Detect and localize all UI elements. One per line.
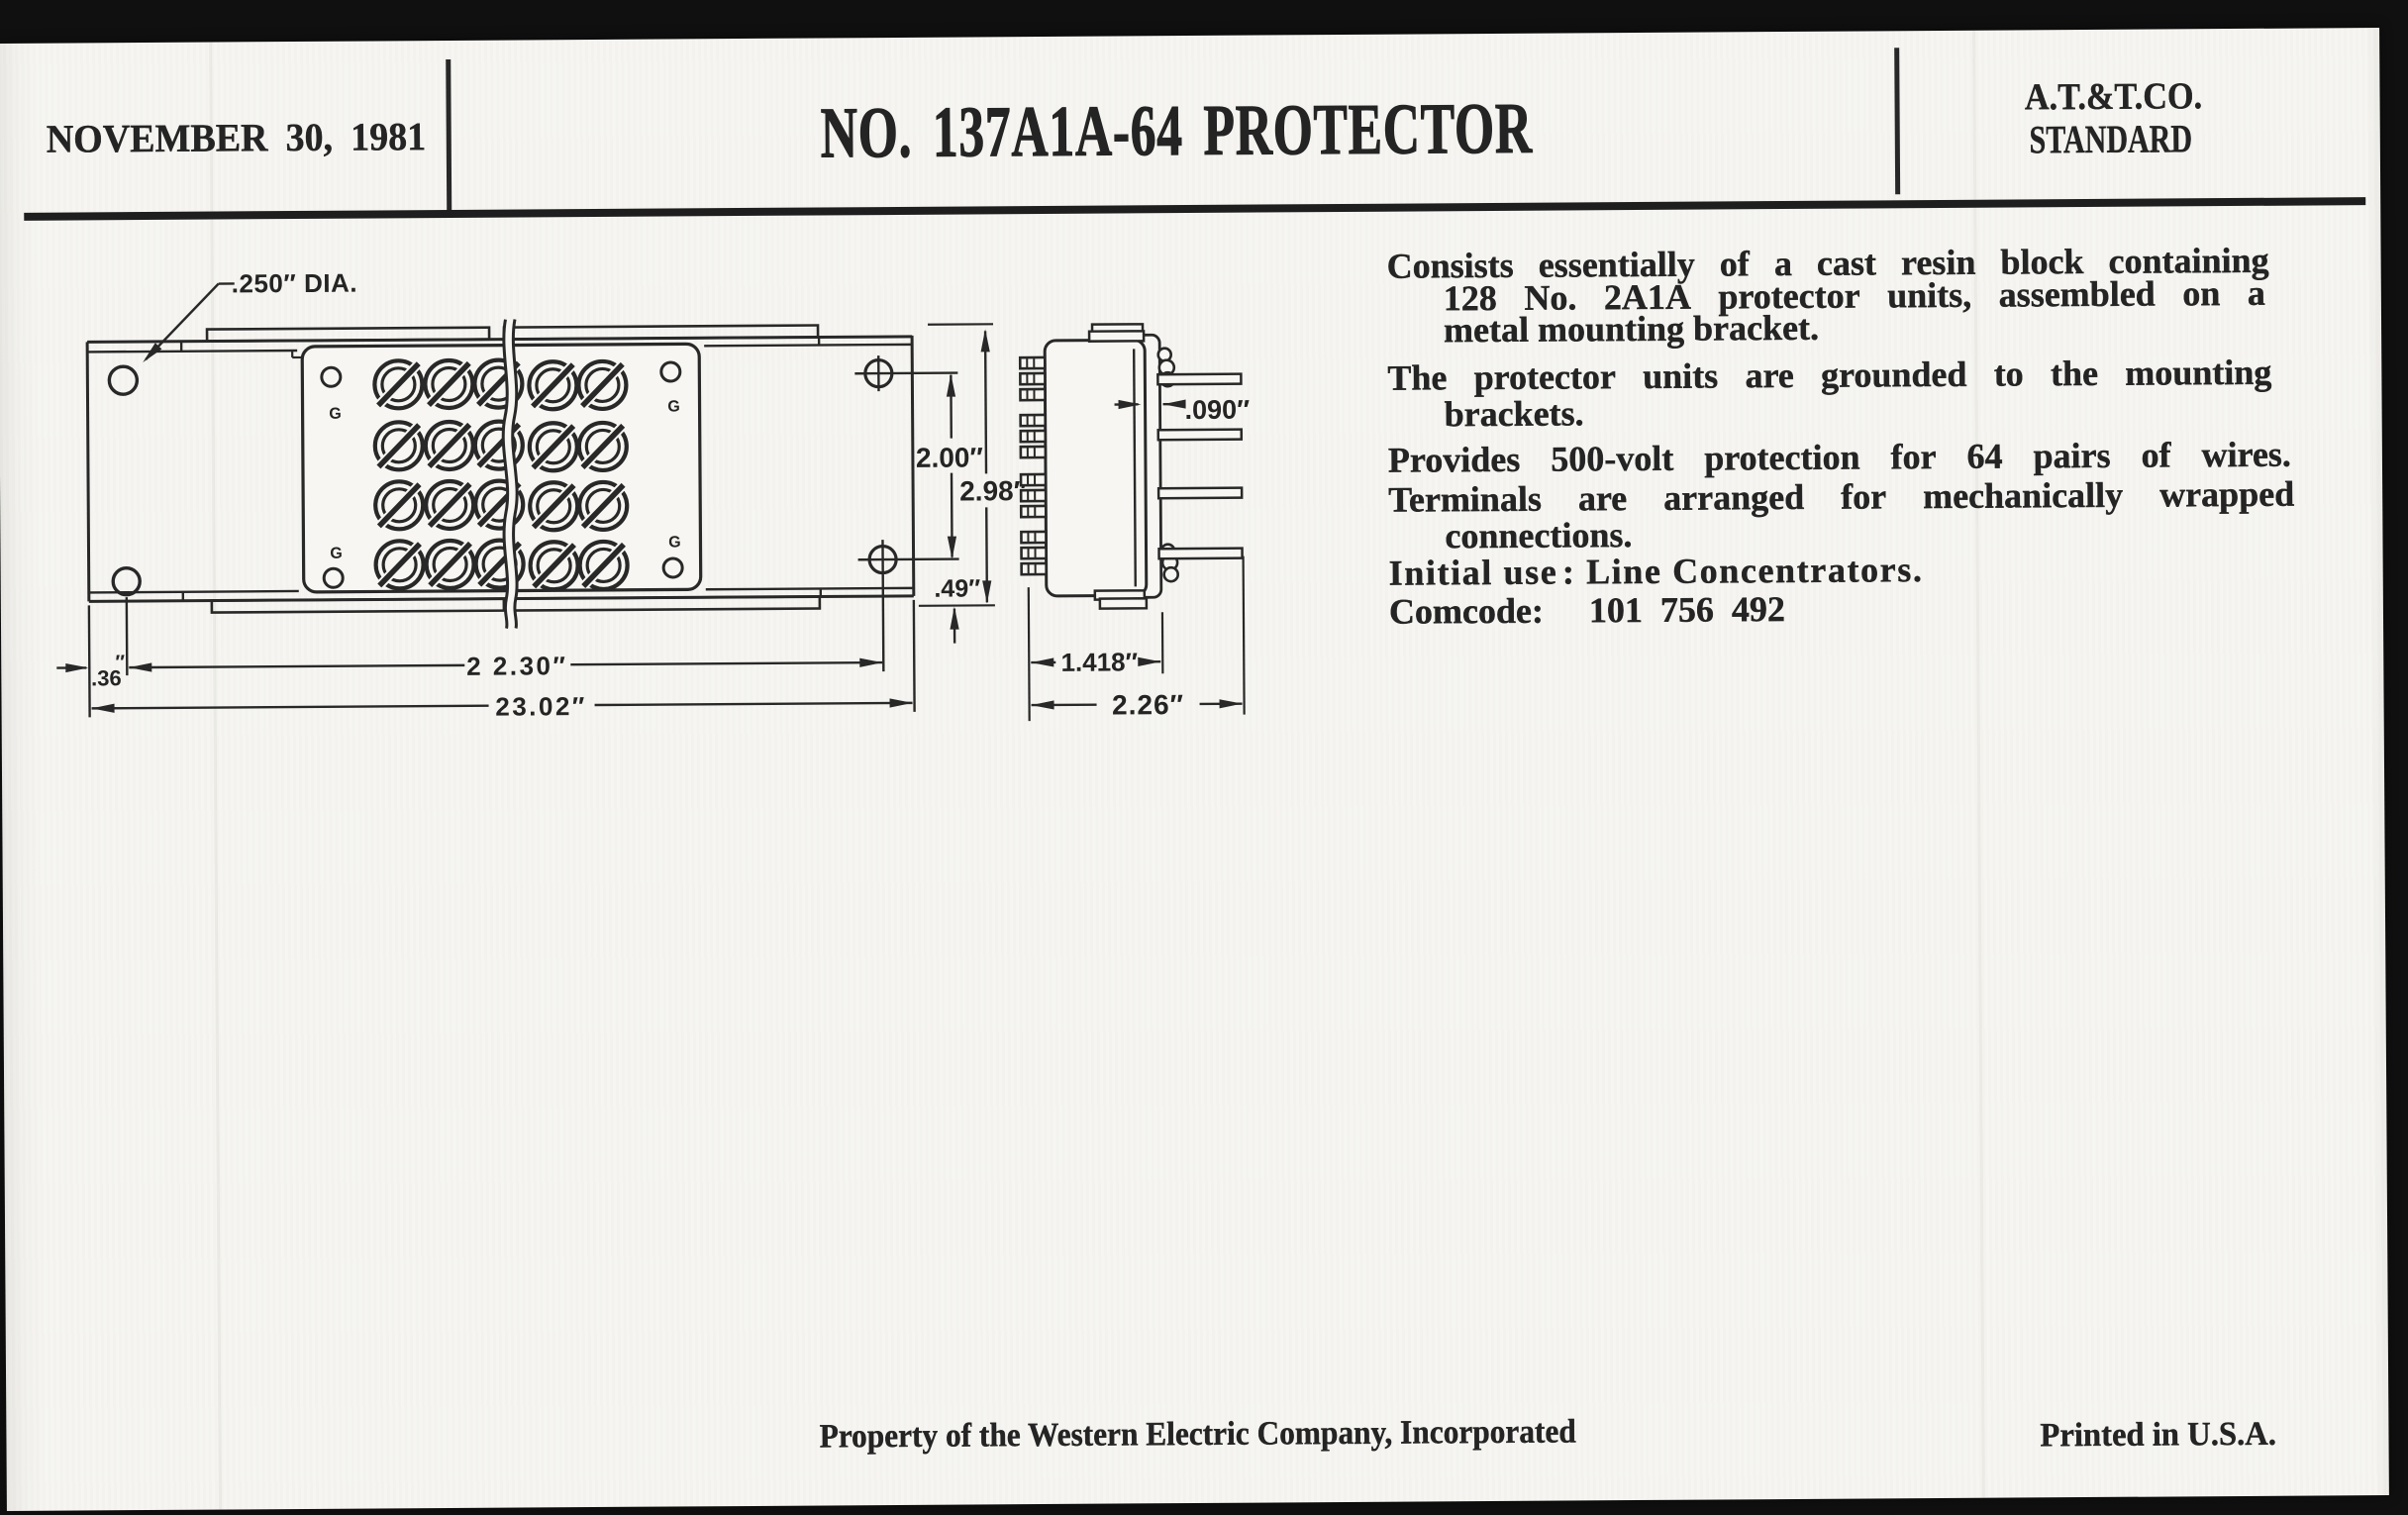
svg-text:″: ″ <box>115 652 125 673</box>
svg-text:23.02″: 23.02″ <box>495 691 587 722</box>
svg-text:G: G <box>667 398 680 415</box>
svg-text:G: G <box>329 406 342 423</box>
svg-text:2 2.30″: 2 2.30″ <box>466 651 567 681</box>
svg-text:.49″: .49″ <box>934 574 980 602</box>
svg-text:2.26″: 2.26″ <box>1112 689 1184 720</box>
svg-text:1.418″: 1.418″ <box>1060 647 1138 677</box>
svg-text:.090″: .090″ <box>1184 395 1250 425</box>
svg-text:2.00″: 2.00″ <box>916 442 983 472</box>
svg-text:G: G <box>668 534 681 551</box>
svg-text:.250″ DIA.: .250″ DIA. <box>232 268 357 299</box>
svg-text:2.98″: 2.98″ <box>959 475 1027 506</box>
svg-text:G: G <box>330 546 343 562</box>
